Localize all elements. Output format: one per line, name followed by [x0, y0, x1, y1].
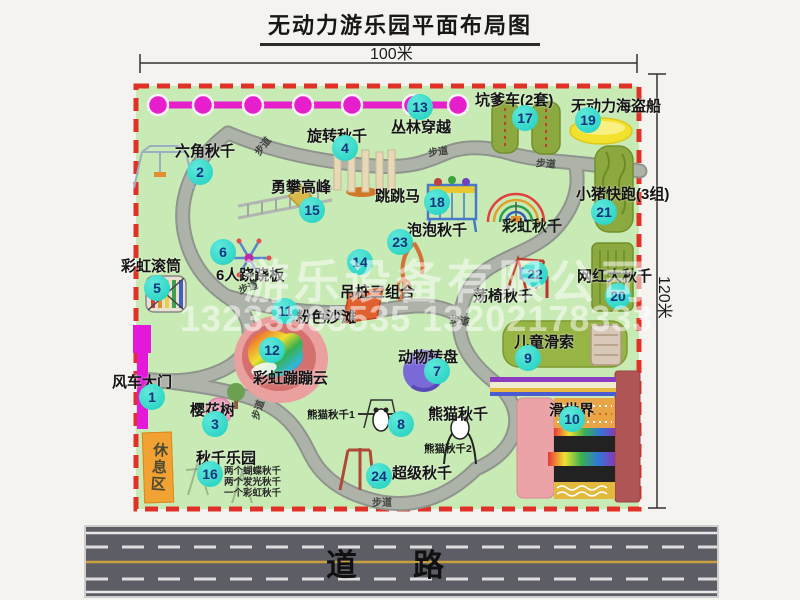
- attraction-badge-10: 10: [559, 406, 585, 432]
- attraction-badge-13: 13: [407, 94, 433, 120]
- attraction-badge-12: 12: [259, 337, 285, 363]
- attraction-badge-3: 3: [202, 411, 228, 437]
- attraction-badge-20: 20: [605, 283, 631, 309]
- attraction-badge-4: 4: [332, 135, 358, 161]
- attraction-badge-24: 24: [366, 463, 392, 489]
- attraction-badge-21: 21: [591, 199, 617, 225]
- walkway-label-2: 步道: [427, 142, 449, 160]
- attraction-label-2: 六角秋千: [175, 140, 235, 161]
- attraction-badge-19: 19: [575, 107, 601, 133]
- dimension-width-label: 100米: [370, 40, 413, 64]
- walkway-label-6: 步道: [372, 494, 392, 509]
- attraction-badge-22: 22: [522, 261, 548, 287]
- attraction-label-17: 坑爹车(2套): [475, 89, 553, 110]
- attraction-label-14: 吊桩三组合: [340, 281, 415, 302]
- dimension-height-label: 120米: [654, 276, 678, 319]
- attraction-badge-1: 1: [139, 384, 165, 410]
- attraction-label-21: 小猪快跑(3组): [576, 183, 669, 204]
- attraction-badge-11: 11: [272, 298, 298, 324]
- extra-label-3: 熊猫秋千2: [424, 441, 472, 456]
- rest-area-label: 休息区: [146, 441, 171, 493]
- attraction-badge-17: 17: [512, 105, 538, 131]
- attraction-badge-15: 15: [299, 197, 325, 223]
- attraction-badge-2: 2: [187, 159, 213, 185]
- attraction-badge-18: 18: [424, 189, 450, 215]
- attraction-badge-14: 14: [347, 249, 373, 275]
- extra-label-2: 熊猫秋千1: [307, 407, 355, 422]
- attraction-badge-7: 7: [424, 358, 450, 384]
- walkway-label-3: 步道: [536, 154, 557, 170]
- park-plan-image: 无动力游乐园平面布局图 100米 120米 休息区 两个蝴蝶秋千 两个发光秋千 …: [0, 0, 800, 600]
- attraction-label-24: 超级秋千: [392, 462, 452, 483]
- attraction-badge-16: 16: [197, 461, 223, 487]
- attraction-badge-8: 8: [388, 411, 414, 437]
- attraction-label-8: 熊猫秋千: [428, 403, 488, 424]
- attraction-badge-5: 5: [144, 275, 170, 301]
- attraction-label-5: 彩虹滚筒: [121, 255, 181, 276]
- attraction-badge-6: 6: [210, 239, 236, 265]
- attraction-label-15: 勇攀高峰: [271, 176, 331, 197]
- walkway-label-7: 步道: [449, 311, 471, 329]
- attraction-label-12: 彩虹蹦蹦云: [253, 367, 328, 388]
- extra-label-1: 彩虹秋千: [502, 215, 562, 236]
- rest-area-box: 休息区: [142, 431, 174, 503]
- attraction-label-22: 荡椅秋千: [473, 285, 533, 306]
- attraction-label-23: 泡泡秋千: [407, 219, 467, 240]
- road-label: 道路: [326, 540, 500, 585]
- attraction-label-18: 跳跳马: [375, 185, 420, 206]
- attraction-badge-9: 9: [515, 345, 541, 371]
- attraction-label-11: 粉色沙滩: [296, 306, 356, 327]
- attraction-badge-23: 23: [387, 229, 413, 255]
- swing-park-notes: 两个蝴蝶秋千 两个发光秋千 一个彩虹秋千: [224, 466, 281, 499]
